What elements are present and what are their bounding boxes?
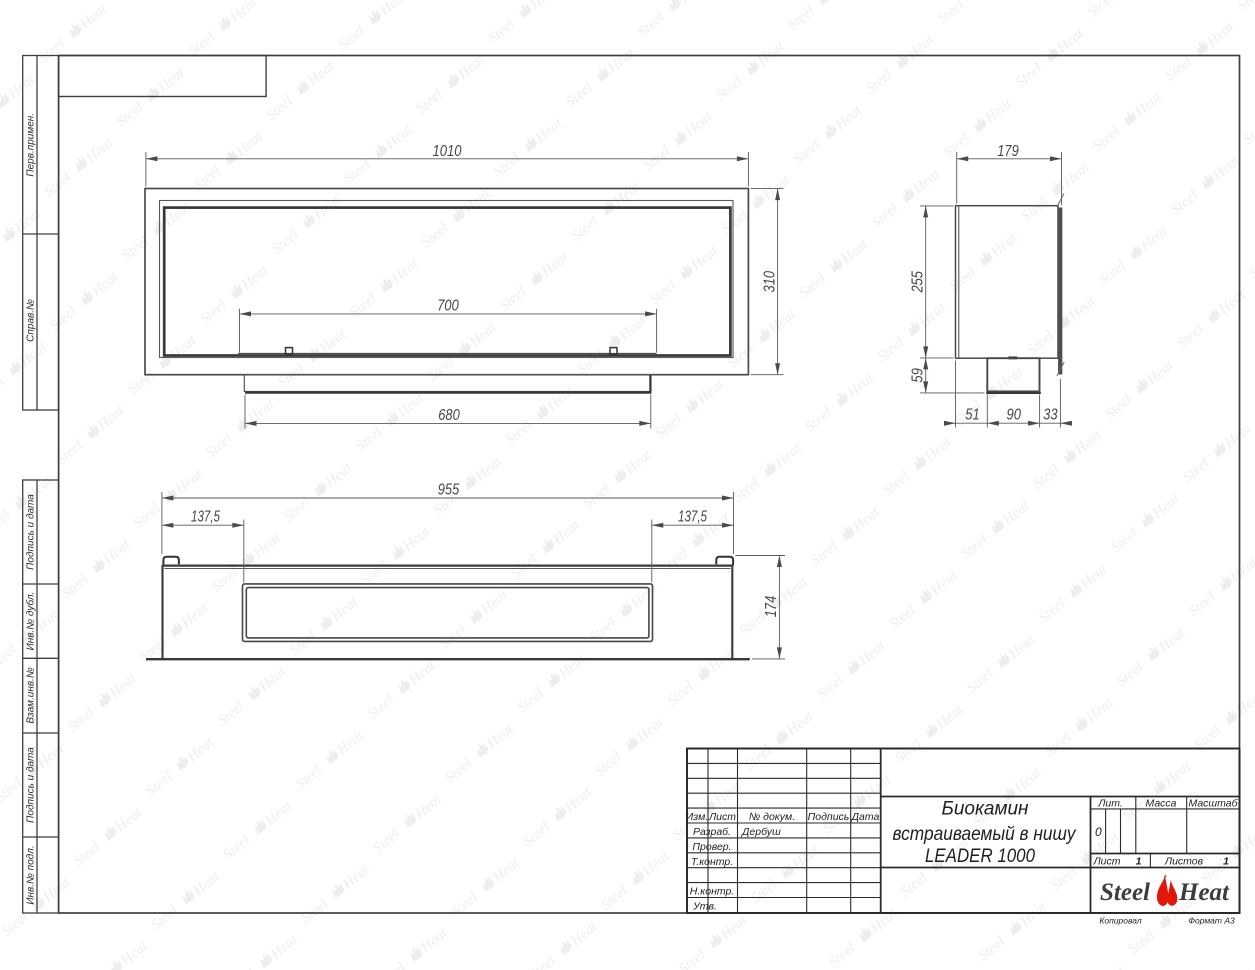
svg-text:59: 59 xyxy=(910,368,927,383)
svg-text:Биокамин: Биокамин xyxy=(942,799,1030,820)
svg-text:Steel: Steel xyxy=(1100,879,1150,906)
svg-text:№ докум.: № докум. xyxy=(749,811,795,823)
svg-text:Дербуш: Дербуш xyxy=(741,826,781,838)
svg-text:Инв.№ дубл.: Инв.№ дубл. xyxy=(25,592,37,651)
svg-text:Разраб.: Разраб. xyxy=(693,826,731,838)
svg-text:179: 179 xyxy=(997,143,1019,160)
svg-text:Подпись и дата: Подпись и дата xyxy=(26,747,37,823)
svg-text:Масштаб: Масштаб xyxy=(1188,798,1238,810)
svg-text:1: 1 xyxy=(1223,856,1229,868)
svg-text:137,5: 137,5 xyxy=(678,509,707,526)
svg-text:Формат А3: Формат А3 xyxy=(1188,916,1235,926)
svg-text:Инв.№ подл.: Инв.№ подл. xyxy=(26,845,37,904)
svg-text:Перв.примен.: Перв.примен. xyxy=(26,113,37,177)
svg-text:Листов: Листов xyxy=(1164,856,1204,868)
svg-text:700: 700 xyxy=(437,298,459,315)
svg-text:Лист: Лист xyxy=(1092,856,1120,868)
svg-text:Лит.: Лит. xyxy=(1097,798,1123,810)
svg-text:Утв.: Утв. xyxy=(692,901,717,913)
svg-text:174: 174 xyxy=(763,595,780,617)
svg-text:Провер.: Провер. xyxy=(692,841,731,853)
svg-text:1010: 1010 xyxy=(433,143,462,160)
svg-text:Взам.инв.№: Взам.инв.№ xyxy=(26,667,37,723)
svg-text:Копировал: Копировал xyxy=(1099,916,1141,926)
svg-text:Т.контр.: Т.контр. xyxy=(691,856,733,868)
svg-text:Дата: Дата xyxy=(851,811,880,823)
svg-text:Изм.: Изм. xyxy=(686,811,708,823)
svg-text:Heat: Heat xyxy=(1178,879,1230,906)
svg-text:LEADER 1000: LEADER 1000 xyxy=(925,846,1035,867)
svg-text:1: 1 xyxy=(1136,856,1142,868)
svg-text:137,5: 137,5 xyxy=(191,509,220,526)
svg-text:310: 310 xyxy=(762,271,779,293)
svg-text:680: 680 xyxy=(438,407,460,424)
svg-text:Подпись и дата: Подпись и дата xyxy=(26,494,37,570)
svg-text:955: 955 xyxy=(438,482,460,499)
svg-text:Лист: Лист xyxy=(708,811,736,823)
svg-text:255: 255 xyxy=(910,271,927,294)
svg-text:90: 90 xyxy=(1007,407,1022,424)
svg-text:Н.контр.: Н.контр. xyxy=(690,886,734,898)
svg-text:Справ.№: Справ.№ xyxy=(26,299,37,342)
svg-text:51: 51 xyxy=(965,407,980,424)
svg-text:33: 33 xyxy=(1043,407,1058,424)
svg-text:встраиваемый в нишу: встраиваемый в нишу xyxy=(893,824,1077,845)
svg-text:0: 0 xyxy=(1095,825,1102,839)
svg-text:Масса: Масса xyxy=(1145,798,1176,810)
svg-text:Подпись: Подпись xyxy=(808,811,850,823)
